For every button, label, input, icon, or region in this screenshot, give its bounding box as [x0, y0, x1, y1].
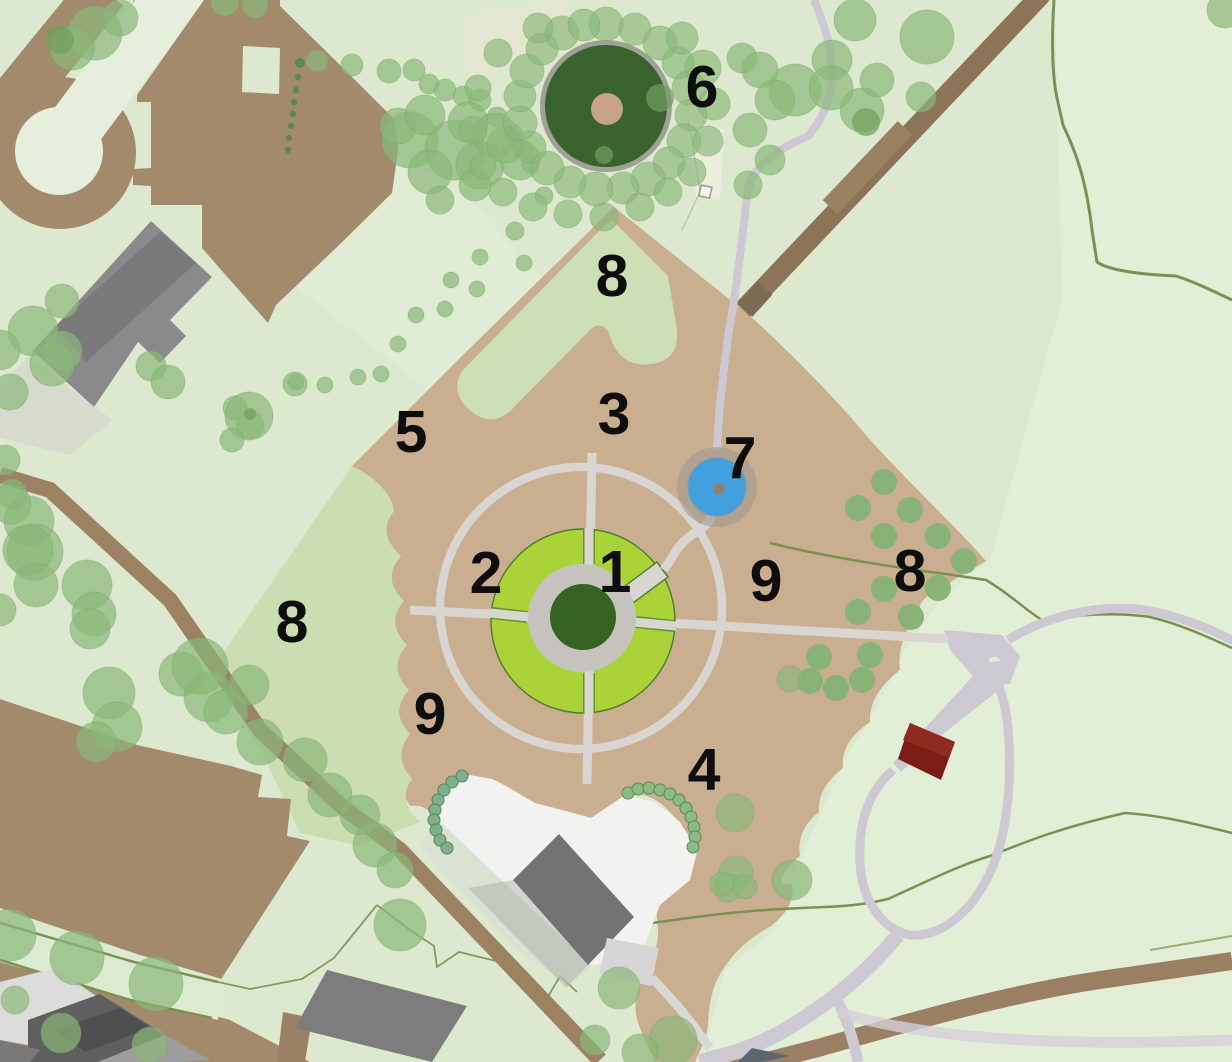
- svg-text:8: 8: [596, 243, 629, 309]
- svg-text:8: 8: [894, 538, 927, 604]
- svg-text:2: 2: [470, 540, 503, 606]
- svg-text:7: 7: [724, 425, 757, 491]
- svg-text:5: 5: [395, 399, 428, 465]
- svg-text:8: 8: [276, 589, 309, 655]
- svg-text:6: 6: [686, 54, 719, 120]
- svg-text:9: 9: [414, 681, 447, 747]
- svg-text:1: 1: [599, 539, 632, 605]
- svg-text:9: 9: [750, 548, 783, 614]
- svg-text:4: 4: [688, 737, 721, 803]
- svg-text:3: 3: [598, 381, 631, 447]
